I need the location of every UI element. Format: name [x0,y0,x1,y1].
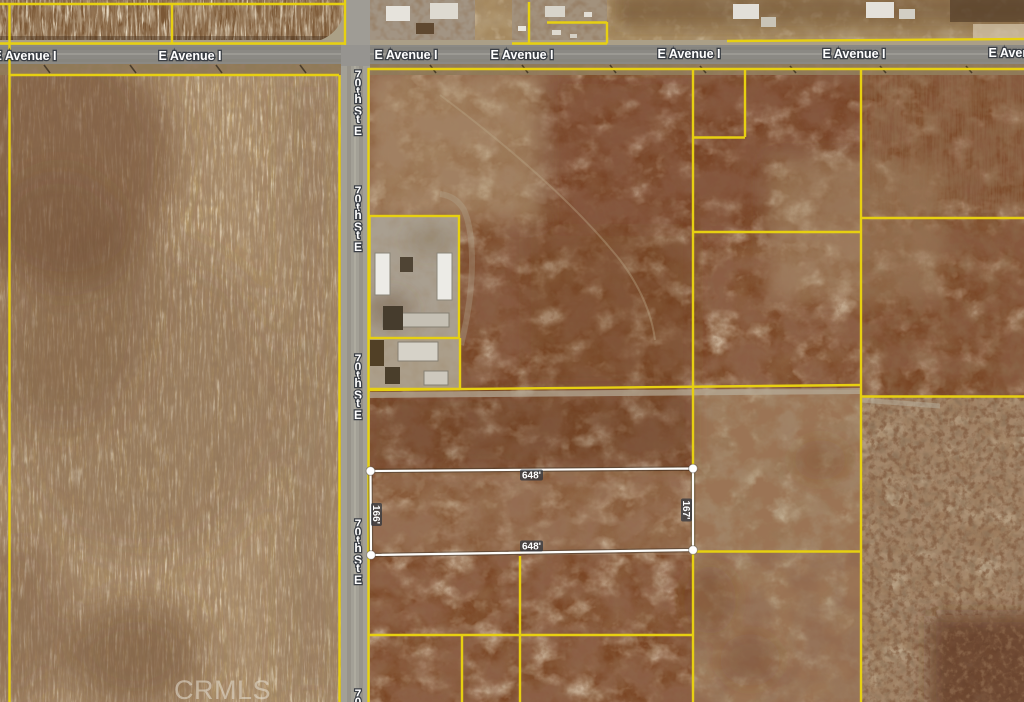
svg-text:E Avenue I: E Avenue I [823,47,886,61]
svg-text:E Avenue I: E Avenue I [989,46,1024,60]
svg-text:70t: 70t [355,687,362,702]
svg-text:70thStE: 70thStE [354,68,362,138]
svg-text:70thStE: 70thStE [354,352,362,422]
svg-text:E Avenue I: E Avenue I [375,48,438,62]
svg-text:70thStE: 70thStE [354,517,362,587]
svg-text:E Avenue I: E Avenue I [658,47,721,61]
svg-text:E Avenue I: E Avenue I [159,49,222,63]
svg-text:166': 166' [370,505,381,524]
svg-text:70thStE: 70thStE [354,184,362,254]
svg-text:167': 167' [680,500,691,519]
svg-text:E Avenue I: E Avenue I [0,49,56,63]
svg-text:648': 648' [522,542,541,553]
svg-text:648': 648' [522,471,541,482]
svg-text:E Avenue I: E Avenue I [491,48,554,62]
